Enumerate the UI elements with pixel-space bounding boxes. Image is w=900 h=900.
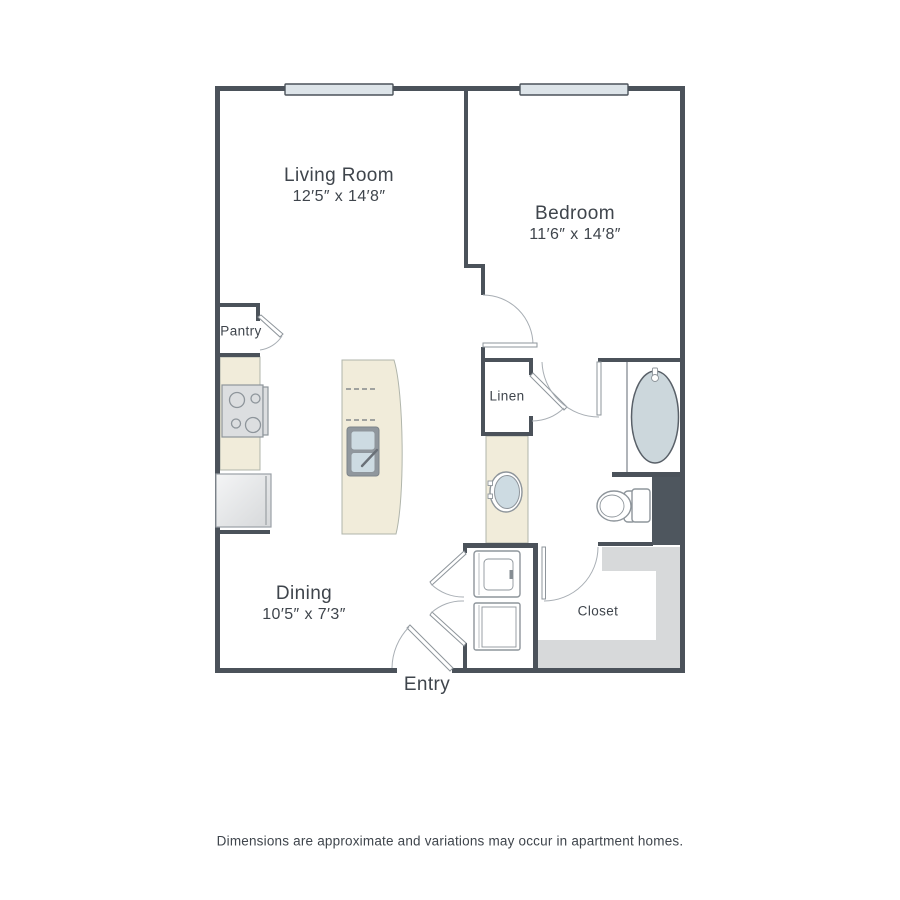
window <box>520 84 628 95</box>
bathroom-door <box>542 362 601 417</box>
entry-door <box>392 625 453 671</box>
linen-door <box>530 373 567 421</box>
pantry-door <box>258 315 283 350</box>
stove <box>222 385 268 437</box>
floor-plan: Living Room 12′5″ x 14′8″ Bedroom 11′6″ … <box>0 0 900 900</box>
washer-dryer-stack <box>474 551 520 650</box>
disclaimer-text: Dimensions are approximate and variation… <box>217 834 684 849</box>
room-label-closet: Closet <box>578 604 619 619</box>
room-label-bedroom: Bedroom 11′6″ x 14′8″ <box>529 203 621 245</box>
room-label-dining: Dining 10′5″ x 7′3″ <box>262 583 346 625</box>
dining-name: Dining <box>262 583 346 605</box>
bedroom-dimensions: 11′6″ x 14′8″ <box>529 225 621 245</box>
room-label-entry: Entry <box>404 674 450 696</box>
window <box>285 84 393 95</box>
bedroom-door <box>483 295 537 347</box>
room-label-pantry: Pantry <box>220 324 261 339</box>
living-room-dimensions: 12′5″ x 14′8″ <box>284 187 394 207</box>
refrigerator <box>216 474 271 527</box>
toilet <box>597 489 650 522</box>
closet-door <box>542 547 598 601</box>
island-sink <box>347 427 379 476</box>
dining-dimensions: 10′5″ x 7′3″ <box>262 605 346 625</box>
room-label-linen: Linen <box>489 389 524 404</box>
room-label-living-room: Living Room 12′5″ x 14′8″ <box>284 165 394 207</box>
bedroom-name: Bedroom <box>529 203 621 225</box>
laundry-closet-doors <box>430 551 466 646</box>
floor-plan-drawing <box>0 0 900 900</box>
plumbing-chase <box>652 475 683 545</box>
living-room-name: Living Room <box>284 165 394 187</box>
bathtub <box>627 362 679 472</box>
